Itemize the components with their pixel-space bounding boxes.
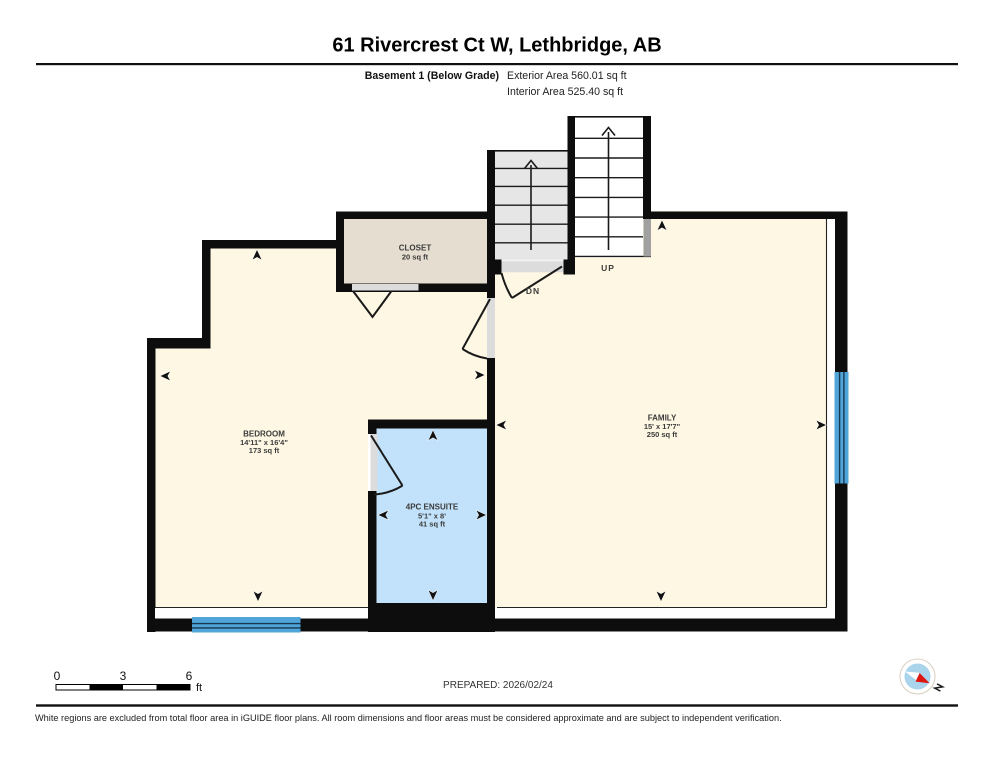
- svg-text:6: 6: [186, 669, 193, 683]
- svg-text:3: 3: [120, 669, 127, 683]
- svg-text:Interior Area 525.40 sq ft: Interior Area 525.40 sq ft: [507, 86, 623, 98]
- svg-text:White regions are excluded fro: White regions are excluded from total fl…: [35, 713, 782, 723]
- svg-text:4PC ENSUITE: 4PC ENSUITE: [406, 503, 459, 512]
- svg-text:ft: ft: [196, 682, 202, 694]
- svg-text:PREPARED: 2026/02/24: PREPARED: 2026/02/24: [443, 680, 553, 691]
- svg-text:250 sq ft: 250 sq ft: [647, 430, 678, 439]
- svg-text:UP: UP: [601, 263, 615, 273]
- svg-text:DN: DN: [526, 286, 540, 296]
- svg-text:61 Rivercrest Ct W, Lethbridge: 61 Rivercrest Ct W, Lethbridge, AB: [332, 35, 661, 57]
- svg-text:173 sq ft: 173 sq ft: [249, 446, 280, 455]
- svg-text:Exterior Area 560.01 sq ft: Exterior Area 560.01 sq ft: [507, 70, 627, 82]
- svg-text:0: 0: [54, 669, 61, 683]
- svg-text:20 sq ft: 20 sq ft: [402, 253, 429, 262]
- svg-text:41 sq ft: 41 sq ft: [419, 520, 446, 529]
- svg-text:CLOSET: CLOSET: [399, 244, 432, 253]
- svg-text:Basement 1 (Below Grade): Basement 1 (Below Grade): [365, 70, 499, 82]
